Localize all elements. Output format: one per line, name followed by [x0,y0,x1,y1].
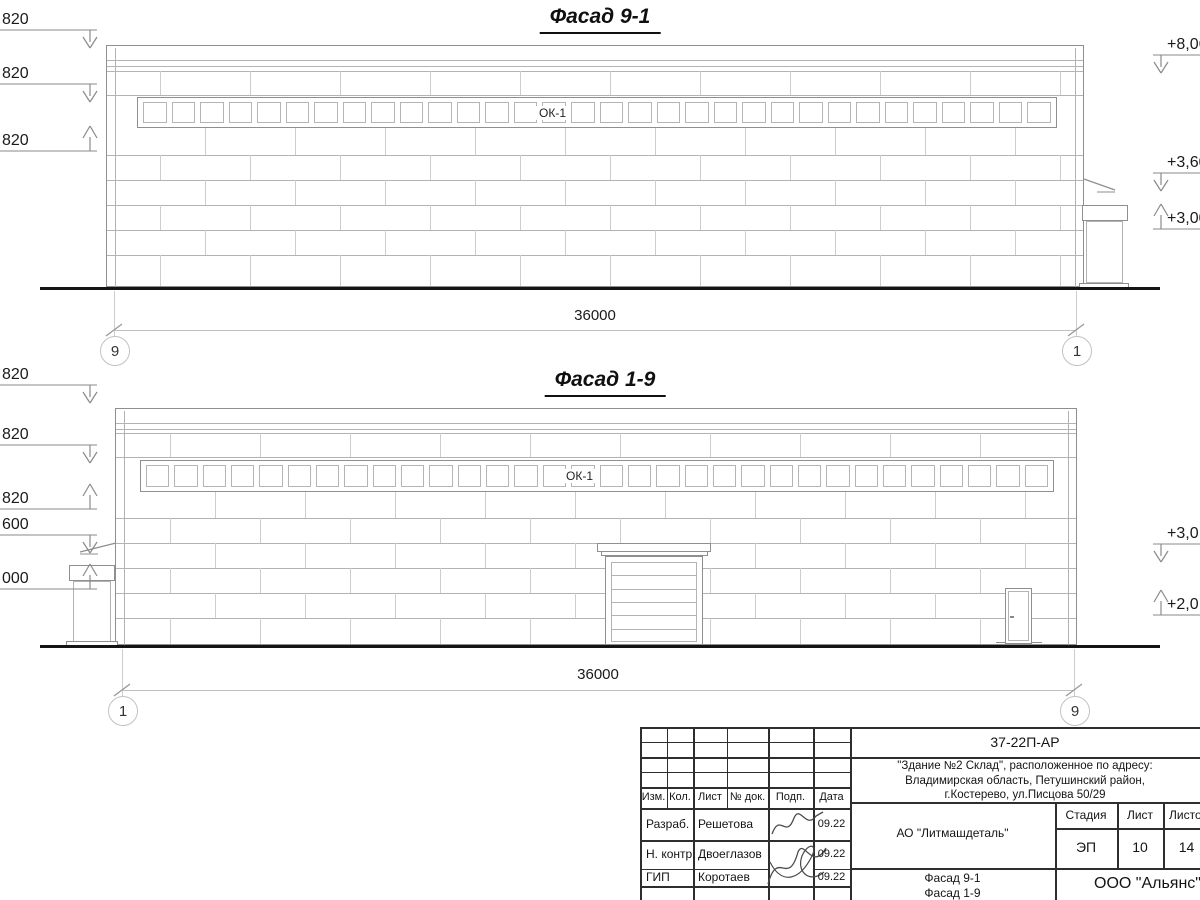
window [231,465,254,487]
panel-line [116,543,1076,544]
panel-joint [745,180,746,205]
window [771,102,795,123]
window [229,102,253,123]
sheets-label: Листов [1169,804,1200,826]
window [856,102,880,123]
window [571,102,595,123]
dimension-line [122,690,1074,691]
panel-line [116,457,1076,458]
window [257,102,281,123]
axis-circle: 1 [108,696,138,726]
axis-circle: 1 [1062,336,1092,366]
panel-joint [1060,255,1061,286]
panel-joint [1015,230,1016,255]
panel-line [116,593,1076,594]
panel-joint [700,71,701,95]
window [714,102,738,123]
panel-joint [295,230,296,255]
window [143,102,167,123]
panel-joint [475,180,476,205]
col-ndok: № док. [727,787,768,808]
sheet-title: Фасад 9-1 Фасад 1-9 [850,871,1055,900]
window [968,465,991,487]
panel-joint [160,255,161,286]
parapet-line [116,429,1076,430]
col-list: Лист [693,787,727,808]
ground-line [40,645,1160,648]
panel-joint [350,433,351,457]
col-podp: Подп. [768,787,813,808]
panel-joint [440,568,441,593]
panel-joint [1060,155,1061,180]
elevation-mark-text: +3,00 [1167,210,1200,228]
parapet-line [107,71,1083,72]
panel-joint [250,71,251,95]
panel-joint [485,492,486,518]
panel-joint [935,492,936,518]
window [996,465,1019,487]
signer-role: ГИП [646,869,694,886]
window [1027,102,1051,123]
window-band [140,460,1054,492]
parapet-line [116,423,1076,424]
panel-joint [710,518,711,543]
panel-joint [575,593,576,618]
window [628,102,652,123]
panel-joint [160,205,161,230]
window [458,465,481,487]
window [828,102,852,123]
panel-joint [260,568,261,593]
window [911,465,934,487]
panel-joint [610,255,611,286]
panel-joint [215,492,216,518]
window [428,102,452,123]
elevation-mark-text: 820 [2,426,29,444]
porch-body [73,581,111,642]
panel-joint [835,180,836,205]
panel-joint [485,543,486,568]
project-address-line: Владимирская область, Петушинский район, [852,774,1198,789]
parapet-line [107,66,1083,67]
panel-joint [800,618,801,644]
facade-bottom-title: Фасад 1-9 [545,368,666,397]
window [798,465,821,487]
panel-joint [880,255,881,286]
gate-slat [612,615,696,616]
axis-extension [1074,649,1075,696]
panel-joint [565,230,566,255]
panel-joint [250,255,251,286]
window [200,102,224,123]
elevation-mark-text: 820 [2,490,29,508]
panel-joint [205,230,206,255]
elevation-mark-text: 820 [2,132,29,150]
window [146,465,169,487]
sheet-title-line: Фасад 9-1 [850,871,1055,886]
elevation-mark-text: 820 [2,65,29,83]
title-block-line [640,886,850,888]
window [429,465,452,487]
gate-slat [612,589,696,590]
panel-joint [215,593,216,618]
elevation-mark-text: +2,0 [1167,596,1199,614]
window [172,102,196,123]
panel-joint [755,492,756,518]
facade-outline [106,45,1084,287]
panel-joint [260,433,261,457]
panel-joint [935,543,936,568]
window [514,465,537,487]
panel-joint [395,543,396,568]
axis-circle: 9 [1060,696,1090,726]
panel-joint [755,593,756,618]
panel-joint [655,180,656,205]
panel-joint [440,433,441,457]
window [514,102,538,123]
panel-joint [980,518,981,543]
panel-joint [935,593,936,618]
gate-slat [612,602,696,603]
axis-circle: 9 [100,336,130,366]
panel-joint [610,205,611,230]
window [343,102,367,123]
window [628,465,651,487]
window [942,102,966,123]
signer-name: Решетова [698,808,768,840]
window [970,102,994,123]
panel-joint [620,433,621,457]
window [742,102,766,123]
panel-joint [800,433,801,457]
panel-line [107,180,1083,181]
panel-line [107,155,1083,156]
window [344,465,367,487]
project-address: "Здание №2 Склад", расположенное по адре… [852,759,1198,803]
panel-joint [260,618,261,644]
parapet-line [107,60,1083,61]
panel-joint [340,255,341,286]
elevation-mark-text: +3,0 [1167,525,1199,543]
window [855,465,878,487]
elevation-mark-text: 820 [2,366,29,384]
panel-joint [980,568,981,593]
panel-joint [305,492,306,518]
panel-joint [710,433,711,457]
panel-joint [350,618,351,644]
drawing-sheet: 820820820+8,06+3,60+3,00820820820600000+… [0,0,1200,900]
panel-joint [970,255,971,286]
panel-joint [925,230,926,255]
signer-date: 09.22 [813,840,850,869]
pilaster-line [1075,48,1076,287]
panel-joint [160,71,161,95]
elevation-mark-text: +8,06 [1167,36,1200,54]
panel-joint [295,180,296,205]
panel-joint [295,128,296,155]
panel-joint [845,543,846,568]
dimension-label-top: 36000 [574,307,616,324]
panel-joint [475,128,476,155]
panel-joint [340,155,341,180]
window [913,102,937,123]
window [203,465,226,487]
dimension-line [114,330,1076,331]
sheet-value: 10 [1117,828,1163,866]
panel-joint [530,618,531,644]
panel-joint [205,128,206,155]
window [883,465,906,487]
panel-joint [710,618,711,644]
window [741,465,764,487]
panel-joint [530,518,531,543]
panel-joint [970,71,971,95]
panel-joint [565,128,566,155]
panel-joint [170,433,171,457]
panel-joint [1025,492,1026,518]
col-izm: Изм. [640,787,667,808]
panel-joint [835,128,836,155]
panel-line [107,230,1083,231]
panel-joint [880,71,881,95]
window [371,102,395,123]
panel-line [107,205,1083,206]
panel-joint [665,492,666,518]
col-data: Дата [813,787,850,808]
panel-joint [340,205,341,230]
window [1025,465,1048,487]
panel-joint [475,230,476,255]
project-address-line: "Здание №2 Склад", расположенное по адре… [852,759,1198,774]
panel-joint [430,205,431,230]
stage-value: ЭП [1055,828,1117,866]
panel-joint [530,433,531,457]
panel-joint [980,433,981,457]
window [600,465,623,487]
panel-joint [970,155,971,180]
panel-joint [170,618,171,644]
panel-joint [440,518,441,543]
window [457,102,481,123]
panel-joint [565,180,566,205]
panel-joint [755,543,756,568]
window [656,465,679,487]
panel-line [107,95,1083,96]
panel-joint [925,180,926,205]
window [799,102,823,123]
panel-joint [340,71,341,95]
window [373,465,396,487]
panel-joint [745,230,746,255]
panel-joint [170,518,171,543]
panel-joint [610,71,611,95]
window-band-label-top: ОК-1 [536,106,569,120]
panel-joint [520,205,521,230]
panel-joint [385,128,386,155]
panel-joint [1025,543,1026,568]
sheets-value: 14 [1163,828,1200,866]
panel-joint [710,568,711,593]
window [826,465,849,487]
panel-joint [890,618,891,644]
panel-joint [880,205,881,230]
panel-joint [430,255,431,286]
panel-joint [160,155,161,180]
panel-joint [520,155,521,180]
panel-joint [1015,128,1016,155]
panel-joint [1015,180,1016,205]
stage-label: Стадия [1055,804,1117,826]
window [885,102,909,123]
axis-extension [114,291,115,336]
window [600,102,624,123]
title-block-line [640,727,642,900]
panel-joint [610,155,611,180]
signer-date: 09.22 [813,869,850,886]
panel-joint [205,180,206,205]
window [174,465,197,487]
panel-joint [655,128,656,155]
window [999,102,1023,123]
panel-joint [1060,205,1061,230]
axis-extension [122,649,123,696]
window [401,465,424,487]
project-address-line: г.Костерево, ул.Писцова 50/29 [852,788,1198,803]
panel-joint [395,593,396,618]
panel-joint [215,543,216,568]
window [314,102,338,123]
customer-company: АО "Литмашдеталь" [850,802,1055,864]
pilaster-line [115,48,116,287]
window [485,102,509,123]
elevation-mark-text: +3,60 [1167,154,1200,172]
panel-joint [250,205,251,230]
panel-joint [790,255,791,286]
panel-joint [250,155,251,180]
gate-slat [612,575,696,576]
porch-body [1086,221,1123,283]
window [657,102,681,123]
signer-name: Двоеглазов [698,840,770,869]
panel-joint [350,518,351,543]
elevation-mark-text: 000 [2,570,29,588]
window [288,465,311,487]
panel-joint [880,155,881,180]
panel-joint [485,593,486,618]
window [400,102,424,123]
door-handle [1010,616,1014,618]
signer-role: Разраб. [646,808,694,840]
panel-joint [1060,71,1061,95]
panel-joint [790,155,791,180]
panel-joint [845,492,846,518]
col-kol: Кол. [667,787,693,808]
title-block-line [640,772,850,773]
panel-joint [170,568,171,593]
panel-joint [700,155,701,180]
panel-joint [890,433,891,457]
pilaster-line [124,411,125,645]
panel-joint [655,230,656,255]
panel-joint [835,230,836,255]
panel-joint [790,205,791,230]
sheet-title-line: Фасад 1-9 [850,886,1055,900]
panel-joint [890,518,891,543]
title-block-line [768,727,770,900]
title-block-line [640,742,850,743]
window [685,102,709,123]
panel-joint [970,205,971,230]
panel-joint [925,128,926,155]
sheet-label: Лист [1117,804,1163,826]
dimension-label-bottom: 36000 [577,666,619,683]
panel-joint [260,518,261,543]
axis-extension [1076,291,1077,336]
panel-joint [700,205,701,230]
window [940,465,963,487]
panel-joint [620,518,621,543]
panel-joint [890,568,891,593]
signer-date: 09.22 [813,808,850,840]
design-org: ООО "Альянс" [1055,868,1200,900]
panel-joint [350,568,351,593]
porch-roof [69,565,115,581]
window [685,465,708,487]
panel-joint [745,128,746,155]
panel-joint [395,492,396,518]
panel-joint [980,618,981,644]
signer-name: Коротаев [698,869,768,886]
window [713,465,736,487]
panel-joint [845,593,846,618]
window-band-label-bottom: ОК-1 [563,469,596,483]
elevation-mark-text: 600 [2,516,29,534]
window [770,465,793,487]
panel-joint [305,593,306,618]
doc-number: 37-22П-АР [850,729,1200,755]
panel-line [107,255,1083,256]
panel-joint [530,568,531,593]
panel-joint [385,230,386,255]
porch-roof [1082,205,1128,221]
panel-joint [430,71,431,95]
window [286,102,310,123]
panel-joint [520,255,521,286]
panel-joint [700,255,701,286]
signer-role: Н. контр. [646,840,698,869]
panel-joint [575,492,576,518]
panel-joint [575,543,576,568]
window [316,465,339,487]
panel-joint [800,518,801,543]
facade-top-title: Фасад 9-1 [540,5,661,34]
panel-joint [520,71,521,95]
window-band [137,97,1057,128]
pilaster-line [1068,411,1069,645]
elevation-mark-text: 820 [2,11,29,29]
panel-joint [790,71,791,95]
panel-joint [800,568,801,593]
gate-slat [612,629,696,630]
window [486,465,509,487]
panel-joint [385,180,386,205]
ground-line [40,287,1160,290]
panel-joint [430,155,431,180]
panel-joint [440,618,441,644]
panel-joint [305,543,306,568]
window [259,465,282,487]
